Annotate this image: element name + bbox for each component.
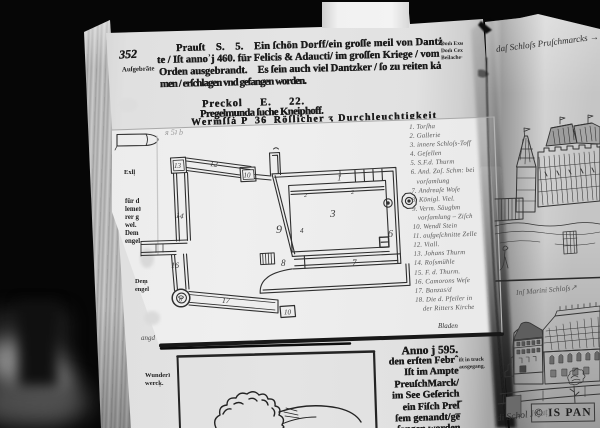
svg-text:6: 6 [179,298,182,304]
svg-text:8: 8 [281,258,286,268]
svg-text:14: 14 [175,211,184,221]
svg-text:3: 3 [329,208,336,220]
svg-text:10: 10 [244,172,252,180]
svg-text:2: 2 [304,193,307,199]
svg-text:6: 6 [388,229,393,240]
svg-text:1: 1 [337,173,341,182]
svg-text:10: 10 [284,309,292,317]
svg-text:2: 2 [351,190,354,196]
svg-text:17: 17 [222,296,232,306]
svg-text:7: 7 [352,258,357,268]
svg-text:13: 13 [174,162,182,170]
svg-text:9: 9 [276,222,282,236]
svg-text:16: 16 [171,261,179,270]
svg-text:4: 4 [300,227,304,235]
svg-text:12: 12 [209,159,218,169]
